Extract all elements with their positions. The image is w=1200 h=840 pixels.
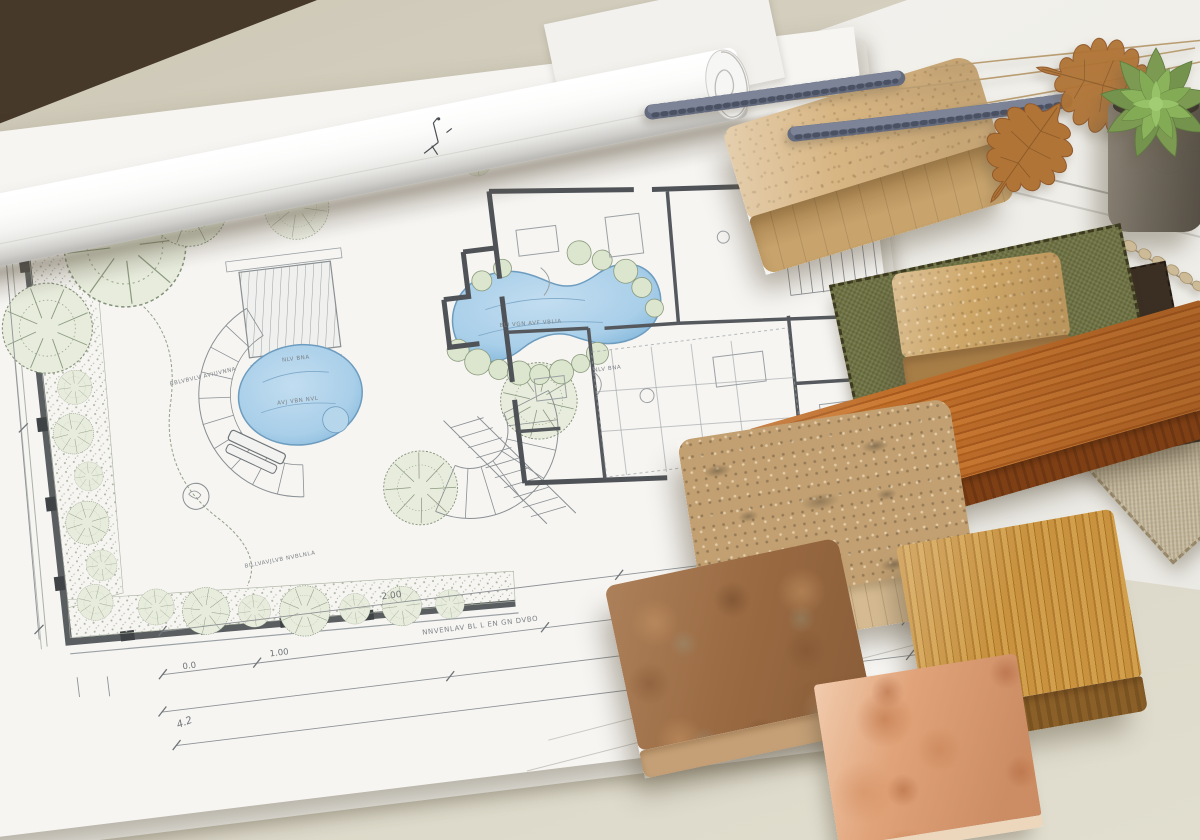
svg-text:BBLVBVLV AVIUVNNA: BBLVBVLV AVIUVNNA xyxy=(169,366,237,387)
plan-title-note: NNVENLAV BL L EN GN DVBO xyxy=(422,615,539,637)
svg-text:BILLVAVJLVB NVBLNLA: BILLVAVJLVB NVBLNLA xyxy=(244,550,316,570)
copper-face xyxy=(813,653,1041,840)
dim-scribble: 4.2 xyxy=(175,715,194,731)
succulent-plant xyxy=(1078,32,1200,162)
photo-scene: 2.00 1.00 0.0 4.2 NNVENLAV BL L EN GN DV… xyxy=(0,0,1200,840)
copper-sheet-sample xyxy=(813,653,1043,840)
kidney-pool xyxy=(436,232,671,398)
dim-label: 0.0 xyxy=(182,661,197,673)
roll-sketch-marks xyxy=(413,109,471,162)
svg-text:NLV BNA: NLV BNA xyxy=(593,365,621,374)
dim-label: 1.00 xyxy=(269,647,289,659)
